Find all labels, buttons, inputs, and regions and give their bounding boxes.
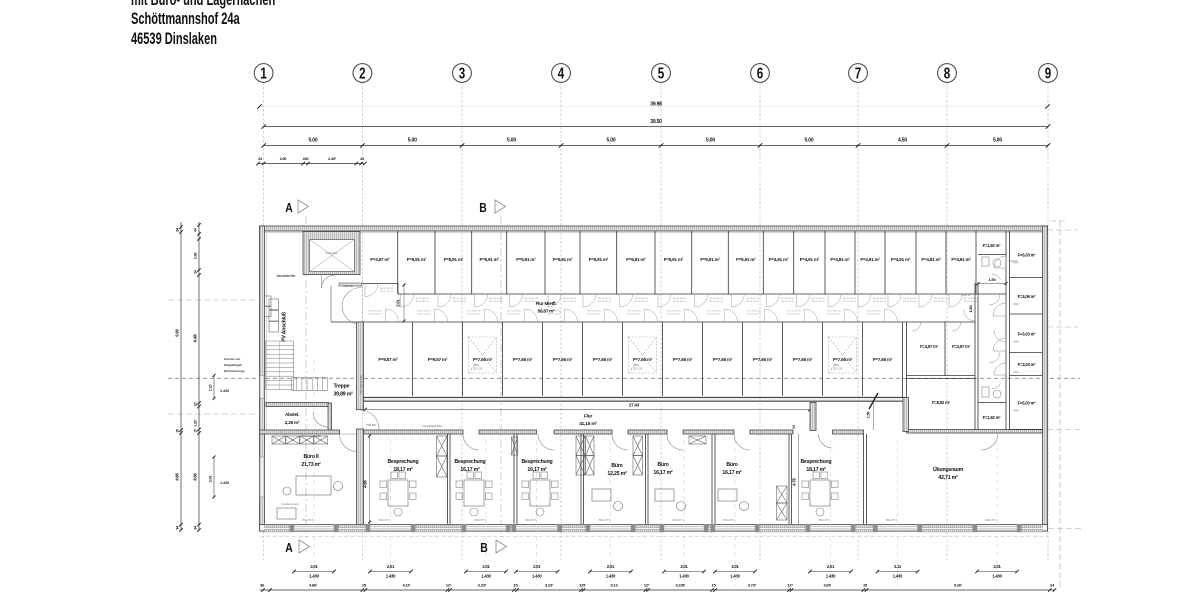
- svg-text:A: A: [285, 541, 293, 555]
- svg-text:BS 03: BS 03: [418, 314, 425, 316]
- svg-text:5.00: 5.00: [993, 138, 1002, 144]
- svg-text:RD 30: RD 30: [416, 298, 423, 300]
- svg-text:2.01: 2.01: [993, 564, 1001, 569]
- svg-text:RD 30: RD 30: [387, 288, 394, 290]
- svg-text:B: B: [480, 541, 488, 555]
- svg-text:BWA: BWA: [634, 363, 640, 367]
- svg-text:1.430: 1.430: [992, 574, 1002, 579]
- svg-text:F=5,91 m²: F=5,91 m²: [700, 257, 720, 262]
- svg-text:39,89 m²: 39,89 m²: [334, 392, 354, 398]
- svg-text:BS 03: BS 03: [934, 301, 941, 303]
- svg-text:Übungsraum: Übungsraum: [933, 466, 964, 473]
- svg-text:12,25 m²: 12,25 m²: [607, 471, 627, 477]
- svg-text:27.43: 27.43: [629, 403, 640, 408]
- svg-text:F=9,57 m²: F=9,57 m²: [378, 357, 398, 362]
- svg-text:5.00: 5.00: [607, 138, 616, 144]
- svg-text:Treppe: Treppe: [334, 384, 350, 390]
- svg-text:RD 30: RD 30: [834, 311, 841, 313]
- svg-text:RD 30: RD 30: [417, 311, 424, 313]
- svg-text:1.430: 1.430: [220, 481, 229, 485]
- svg-text:2.01: 2.01: [209, 476, 213, 483]
- svg-text:BWA: BWA: [474, 363, 480, 367]
- svg-text:RD 30: RD 30: [867, 311, 874, 313]
- svg-text:1.15: 1.15: [209, 385, 213, 392]
- svg-text:BS 03: BS 03: [748, 314, 755, 316]
- svg-text:24: 24: [194, 270, 198, 274]
- svg-text:BRH 87,5: BRH 87,5: [379, 518, 391, 522]
- svg-text:12⁵: 12⁵: [194, 401, 198, 406]
- svg-text:BS 03: BS 03: [595, 314, 602, 316]
- svg-text:RD 30: RD 30: [525, 298, 532, 300]
- svg-text:2.11: 2.11: [894, 564, 902, 569]
- svg-text:1.20*1.00: 1.20*1.00: [631, 367, 643, 371]
- svg-text:2.01: 2.01: [607, 564, 615, 569]
- svg-text:1.50: 1.50: [989, 277, 997, 282]
- svg-text:Verteilerschrank: Verteilerschrank: [281, 503, 299, 506]
- svg-text:3.65: 3.65: [824, 583, 832, 588]
- svg-text:RD 30: RD 30: [423, 298, 430, 300]
- svg-text:42,71 m²: 42,71 m²: [938, 475, 958, 481]
- svg-text:Trennwand F30: Trennwand F30: [301, 434, 321, 438]
- svg-text:3.73⁵: 3.73⁵: [748, 583, 757, 588]
- svg-text:F=9,92 m²: F=9,92 m²: [932, 400, 950, 405]
- svg-text:RWA: RWA: [1013, 340, 1019, 343]
- svg-text:F=1,92 m²: F=1,92 m²: [983, 243, 1001, 248]
- svg-text:3.23⁵: 3.23⁵: [478, 583, 487, 588]
- svg-text:PV Anschluß: PV Anschluß: [282, 311, 288, 342]
- svg-text:Besprechung: Besprechung: [455, 459, 486, 465]
- svg-text:BS 03: BS 03: [508, 314, 515, 316]
- svg-text:(Entrauchung): (Entrauchung): [224, 369, 245, 373]
- svg-text:F=5,91 m²: F=5,91 m²: [480, 257, 500, 262]
- svg-text:BS 03: BS 03: [788, 314, 795, 316]
- svg-text:2.01: 2.01: [680, 564, 688, 569]
- svg-text:RD 30: RD 30: [934, 298, 941, 300]
- svg-text:BS 03: BS 03: [868, 314, 875, 316]
- svg-text:Trennwand F30: Trennwand F30: [359, 375, 363, 395]
- svg-text:6: 6: [757, 65, 764, 82]
- svg-text:F=4,91 m²: F=4,91 m²: [891, 257, 911, 262]
- svg-text:Vorratskeller: Vorratskeller: [276, 274, 296, 278]
- svg-text:21,73 m²: 21,73 m²: [301, 462, 321, 468]
- svg-text:Büro: Büro: [611, 463, 622, 469]
- svg-text:BS 03: BS 03: [570, 301, 577, 303]
- svg-text:Abstel.: Abstel.: [285, 412, 299, 417]
- svg-text:3.13: 3.13: [611, 583, 619, 588]
- svg-text:RD 30: RD 30: [563, 298, 570, 300]
- svg-text:BS 03: BS 03: [416, 301, 423, 303]
- svg-text:A: A: [285, 201, 293, 215]
- svg-text:1.430: 1.430: [481, 574, 491, 579]
- svg-text:RD 30: RD 30: [514, 311, 521, 313]
- svg-text:BS 03: BS 03: [635, 301, 642, 303]
- svg-text:BS 03: BS 03: [781, 301, 788, 303]
- svg-text:RD 30: RD 30: [554, 311, 561, 313]
- svg-text:BS 03: BS 03: [588, 314, 595, 316]
- svg-text:1.430: 1.430: [386, 574, 396, 579]
- svg-text:41,15 m²: 41,15 m²: [579, 421, 597, 427]
- svg-text:BS 03: BS 03: [971, 301, 978, 303]
- svg-text:F=4,91 m²: F=4,91 m²: [800, 257, 820, 262]
- svg-text:RD 30: RD 30: [964, 298, 971, 300]
- svg-text:RWA 30: RWA 30: [962, 294, 971, 297]
- svg-text:F=5,91 m²: F=5,91 m²: [736, 257, 756, 262]
- svg-text:2: 2: [359, 65, 366, 82]
- svg-text:F=5,91 m²: F=5,91 m²: [516, 257, 536, 262]
- svg-text:3: 3: [459, 65, 466, 82]
- svg-text:2.01: 2.01: [533, 564, 541, 569]
- svg-text:RD 30: RD 30: [850, 298, 857, 300]
- svg-text:BS 03: BS 03: [753, 301, 760, 303]
- svg-text:Fenster mit: Fenster mit: [224, 357, 240, 361]
- svg-text:4.66: 4.66: [175, 472, 180, 480]
- svg-text:1.50: 1.50: [867, 412, 871, 419]
- svg-text:BRH 87,5: BRH 87,5: [985, 518, 997, 522]
- svg-text:RD 30: RD 30: [903, 298, 910, 300]
- svg-text:4.50: 4.50: [898, 138, 907, 144]
- svg-text:RD 30: RD 30: [710, 298, 717, 300]
- svg-text:BS 03: BS 03: [453, 301, 460, 303]
- svg-text:12⁵: 12⁵: [446, 583, 452, 588]
- svg-text:BS 03: BS 03: [532, 301, 539, 303]
- svg-text:BS 03: BS 03: [828, 314, 835, 316]
- svg-text:1.430: 1.430: [826, 574, 836, 579]
- svg-text:Büro: Büro: [657, 462, 668, 468]
- svg-text:Trennwand F30: Trennwand F30: [422, 424, 442, 428]
- svg-text:RD 30: RD 30: [910, 298, 917, 300]
- svg-text:15: 15: [176, 429, 180, 433]
- svg-text:BS 03: BS 03: [668, 314, 675, 316]
- svg-text:RD 30: RD 30: [460, 298, 467, 300]
- svg-text:1.430: 1.430: [532, 574, 542, 579]
- svg-text:F=7,65 m²: F=7,65 m²: [873, 357, 893, 362]
- svg-text:BS 03: BS 03: [708, 314, 715, 316]
- svg-text:RWA: RWA: [1013, 303, 1019, 306]
- svg-text:RD 30: RD 30: [880, 298, 887, 300]
- svg-text:4.66: 4.66: [193, 472, 198, 480]
- svg-text:RD 30: RD 30: [634, 311, 641, 313]
- svg-text:2.43¹: 2.43¹: [328, 157, 337, 161]
- svg-text:RD 30: RD 30: [971, 298, 978, 300]
- svg-text:RWA: RWA: [1013, 410, 1019, 413]
- svg-text:Fahrstuhl: Fahrstuhl: [326, 251, 338, 255]
- svg-text:RD 30: RD 30: [587, 311, 594, 313]
- svg-text:RD 30: RD 30: [368, 311, 375, 313]
- svg-text:4.66¹: 4.66¹: [309, 583, 318, 588]
- svg-text:RD 30: RD 30: [598, 298, 605, 300]
- svg-text:F=5,91 m²: F=5,91 m²: [664, 257, 684, 262]
- svg-text:5.00: 5.00: [408, 138, 417, 144]
- svg-text:5: 5: [658, 65, 665, 82]
- svg-text:RD 30: RD 30: [667, 311, 674, 313]
- svg-text:4.76: 4.76: [792, 477, 797, 485]
- svg-text:RD 30: RD 30: [673, 298, 680, 300]
- svg-text:BS 03: BS 03: [563, 301, 570, 303]
- svg-text:3.23¹: 3.23¹: [545, 583, 554, 588]
- svg-text:F=5,03 m²: F=5,03 m²: [1018, 252, 1036, 257]
- svg-text:BS 03: BS 03: [843, 301, 850, 303]
- svg-text:5.00: 5.00: [805, 138, 814, 144]
- svg-text:BRH 87,5: BRH 87,5: [525, 518, 537, 522]
- svg-text:2.01: 2.01: [482, 564, 490, 569]
- svg-text:F=7,65 m²: F=7,65 m²: [593, 357, 613, 362]
- svg-text:RD 30: RD 30: [642, 298, 649, 300]
- svg-text:T30 RS: T30 RS: [366, 423, 376, 427]
- svg-text:2.01: 2.01: [827, 564, 835, 569]
- svg-text:BS 03: BS 03: [941, 301, 948, 303]
- svg-text:BS 03: BS 03: [819, 301, 826, 303]
- svg-text:BS 03: BS 03: [548, 314, 555, 316]
- svg-text:RD 30: RD 30: [474, 311, 481, 313]
- svg-text:BRH 87,5: BRH 87,5: [302, 518, 314, 522]
- svg-text:RD 30: RD 30: [605, 298, 612, 300]
- svg-text:mit Büro- und Lagerflächen: mit Büro- und Lagerflächen: [131, 0, 275, 9]
- svg-text:RD 30: RD 30: [827, 311, 834, 313]
- svg-text:BS 03: BS 03: [875, 314, 882, 316]
- svg-text:RD 30: RD 30: [819, 298, 826, 300]
- svg-text:BS 03: BS 03: [380, 291, 387, 293]
- svg-text:RD 30: RD 30: [788, 298, 795, 300]
- svg-text:1.50: 1.50: [968, 305, 973, 313]
- svg-text:RD 30: RD 30: [794, 311, 801, 313]
- svg-text:BS 03: BS 03: [910, 301, 917, 303]
- svg-text:F=3,97 m²: F=3,97 m²: [952, 344, 970, 349]
- svg-text:RWA: RWA: [1013, 371, 1019, 374]
- svg-text:BS 03: BS 03: [642, 301, 649, 303]
- svg-text:RD 30: RD 30: [754, 311, 761, 313]
- svg-text:RD 30: RD 30: [787, 311, 794, 313]
- svg-text:RD 30: RD 30: [680, 298, 687, 300]
- svg-text:125: 125: [579, 583, 586, 588]
- svg-text:RD 30: RD 30: [674, 311, 681, 313]
- svg-text:1.430: 1.430: [679, 574, 689, 579]
- svg-text:F=7,65 m²: F=7,65 m²: [833, 357, 853, 362]
- svg-text:RD 30: RD 30: [594, 311, 601, 313]
- svg-text:3.235: 3.235: [675, 583, 685, 588]
- svg-text:RD 30: RD 30: [707, 311, 714, 313]
- svg-text:RD 30: RD 30: [714, 311, 721, 313]
- svg-text:BRH 87,5: BRH 87,5: [672, 518, 684, 522]
- svg-text:F=5,91 m²: F=5,91 m²: [444, 257, 464, 262]
- svg-text:5.00: 5.00: [507, 138, 516, 144]
- svg-text:8: 8: [944, 65, 951, 82]
- svg-text:1.430: 1.430: [730, 574, 740, 579]
- svg-text:Besprechung: Besprechung: [522, 459, 553, 465]
- svg-text:16,17 m²: 16,17 m²: [653, 470, 673, 476]
- svg-text:F=4,97 m²: F=4,97 m²: [370, 257, 390, 262]
- svg-text:BS 03: BS 03: [746, 301, 753, 303]
- svg-text:F=5,91 m²: F=5,91 m²: [553, 257, 573, 262]
- svg-text:1.430: 1.430: [309, 574, 319, 579]
- svg-text:Klappflügeln: Klappflügeln: [224, 363, 242, 367]
- svg-text:5.00: 5.00: [309, 138, 318, 144]
- svg-text:5.00: 5.00: [706, 138, 715, 144]
- svg-text:RD 30: RD 30: [781, 298, 788, 300]
- svg-text:BRH 87,5: BRH 87,5: [474, 518, 486, 522]
- svg-text:Besprechung: Besprechung: [388, 459, 419, 465]
- svg-text:RD 30: RD 30: [547, 311, 554, 313]
- svg-text:RD 30: RD 30: [490, 298, 497, 300]
- svg-text:Flur Mietfl.: Flur Mietfl.: [536, 301, 557, 306]
- svg-text:BS 03: BS 03: [710, 301, 717, 303]
- svg-text:Flur: Flur: [584, 414, 593, 420]
- svg-text:F=7,65 m²: F=7,65 m²: [633, 357, 653, 362]
- svg-text:4.15: 4.15: [403, 583, 411, 588]
- svg-text:BS 03: BS 03: [964, 301, 971, 303]
- svg-text:RD 30: RD 30: [375, 311, 382, 313]
- svg-text:BS 03: BS 03: [425, 314, 432, 316]
- svg-text:BS 03: BS 03: [460, 301, 467, 303]
- svg-text:F=4,91 m²: F=4,91 m²: [951, 257, 971, 262]
- svg-text:39.50: 39.50: [650, 119, 662, 125]
- svg-text:RD 30: RD 30: [424, 311, 431, 313]
- svg-text:B: B: [479, 201, 487, 215]
- svg-text:1.20*1.00: 1.20*1.00: [831, 367, 843, 371]
- svg-text:12⁵: 12⁵: [644, 583, 650, 588]
- svg-text:BS 03: BS 03: [873, 301, 880, 303]
- svg-text:2.00: 2.00: [280, 157, 287, 161]
- svg-text:BS 03: BS 03: [490, 301, 497, 303]
- svg-text:RD 30: RD 30: [635, 298, 642, 300]
- svg-text:BS 03: BS 03: [835, 314, 842, 316]
- svg-text:F=5,91 m²: F=5,91 m²: [626, 257, 646, 262]
- svg-text:RD 30: RD 30: [380, 288, 387, 290]
- svg-text:BS 03: BS 03: [850, 301, 857, 303]
- svg-text:F=7,65 m²: F=7,65 m²: [473, 357, 493, 362]
- svg-text:RD 30: RD 30: [746, 298, 753, 300]
- svg-text:RD 30: RD 30: [532, 298, 539, 300]
- svg-text:9: 9: [1045, 65, 1052, 82]
- svg-text:RD 30: RD 30: [941, 298, 948, 300]
- svg-text:T30 RS: T30 RS: [343, 284, 353, 288]
- svg-text:RD 30: RD 30: [717, 298, 724, 300]
- svg-text:F=9,57 m²: F=9,57 m²: [428, 357, 448, 362]
- svg-text:BS 03: BS 03: [788, 301, 795, 303]
- svg-text:BS 03: BS 03: [715, 314, 722, 316]
- svg-text:F=5,91 m²: F=5,91 m²: [407, 257, 427, 262]
- svg-text:1.430: 1.430: [220, 389, 229, 393]
- svg-text:RD 30: RD 30: [747, 311, 754, 313]
- svg-text:F=7,65 m²: F=7,65 m²: [673, 357, 693, 362]
- svg-text:F=4,91 m²: F=4,91 m²: [921, 257, 941, 262]
- svg-text:F=7,65 m²: F=7,65 m²: [753, 357, 773, 362]
- svg-text:F=3,03 m²: F=3,03 m²: [1018, 331, 1036, 336]
- svg-text:2.01: 2.01: [396, 298, 401, 306]
- svg-text:2.01: 2.01: [731, 564, 739, 569]
- svg-text:F=4,06 m²: F=4,06 m²: [1018, 294, 1036, 299]
- svg-text:F=4,91 m²: F=4,91 m²: [860, 257, 880, 262]
- svg-text:BS 03: BS 03: [680, 301, 687, 303]
- svg-text:2.01: 2.01: [387, 564, 395, 569]
- svg-text:240: 240: [303, 157, 309, 161]
- svg-text:F=7,65 m²: F=7,65 m²: [553, 357, 573, 362]
- svg-text:BS 03: BS 03: [628, 314, 635, 316]
- svg-text:Büro II: Büro II: [303, 454, 319, 460]
- svg-text:BS 03: BS 03: [475, 314, 482, 316]
- svg-text:RD 30: RD 30: [874, 311, 881, 313]
- svg-text:BRH 87,5: BRH 87,5: [886, 518, 898, 522]
- svg-text:4.66: 4.66: [363, 479, 368, 487]
- svg-text:BRH 87,5: BRH 87,5: [723, 518, 735, 522]
- svg-text:RD 30: RD 30: [873, 298, 880, 300]
- svg-text:RWA: RWA: [1013, 261, 1019, 264]
- svg-text:F=7,65 m²: F=7,65 m²: [513, 357, 533, 362]
- svg-text:BS 03: BS 03: [795, 314, 802, 316]
- svg-text:9.99: 9.99: [175, 328, 180, 336]
- svg-text:1.20*1.00: 1.20*1.00: [471, 367, 483, 371]
- svg-text:F=7,65 m²: F=7,65 m²: [713, 357, 733, 362]
- svg-text:3.5: 3.5: [792, 425, 796, 429]
- svg-text:BS 03: BS 03: [555, 314, 562, 316]
- svg-text:BS 03: BS 03: [525, 301, 532, 303]
- svg-text:RD 30: RD 30: [753, 298, 760, 300]
- svg-text:RD 30: RD 30: [843, 298, 850, 300]
- svg-text:BS 03: BS 03: [497, 301, 504, 303]
- svg-text:BS 03: BS 03: [468, 314, 475, 316]
- svg-text:2,26 m²: 2,26 m²: [285, 420, 300, 425]
- svg-text:RD 30: RD 30: [507, 311, 514, 313]
- svg-text:2.01: 2.01: [310, 564, 318, 569]
- svg-text:BS 03: BS 03: [635, 314, 642, 316]
- svg-text:BS 03: BS 03: [880, 301, 887, 303]
- svg-text:F=3,03 m²: F=3,03 m²: [1018, 362, 1036, 367]
- svg-text:9.26¹: 9.26¹: [954, 583, 963, 588]
- svg-text:BS 03: BS 03: [376, 314, 383, 316]
- svg-text:RD 30: RD 30: [627, 311, 634, 313]
- svg-text:RD 30: RD 30: [812, 298, 819, 300]
- svg-text:F=5,03 m²: F=5,03 m²: [1018, 401, 1036, 406]
- svg-text:BRH 87,5: BRH 87,5: [599, 518, 611, 522]
- svg-text:1.60: 1.60: [194, 253, 198, 260]
- svg-text:44: 44: [194, 228, 198, 232]
- svg-text:F=4,91 m²: F=4,91 m²: [830, 257, 850, 262]
- svg-text:F=7,65 m²: F=7,65 m²: [793, 357, 813, 362]
- svg-text:RD 30: RD 30: [497, 298, 504, 300]
- svg-text:RD 30: RD 30: [467, 311, 474, 313]
- svg-text:BS 03: BS 03: [755, 314, 762, 316]
- svg-text:16,17 m²: 16,17 m²: [722, 470, 742, 476]
- svg-text:BS 03: BS 03: [515, 314, 522, 316]
- svg-text:BS 03: BS 03: [812, 301, 819, 303]
- svg-text:BS 03: BS 03: [598, 301, 605, 303]
- svg-text:Besprechung: Besprechung: [801, 459, 832, 465]
- svg-text:BS 03: BS 03: [423, 301, 430, 303]
- svg-text:BS 03: BS 03: [717, 301, 724, 303]
- svg-text:BWA: BWA: [834, 363, 840, 367]
- svg-text:F=4,91 m²: F=4,91 m²: [769, 257, 789, 262]
- svg-text:F=5,91 m²: F=5,91 m²: [589, 257, 609, 262]
- svg-text:BS 03: BS 03: [675, 314, 682, 316]
- svg-text:F=1,92 m²: F=1,92 m²: [983, 415, 1001, 420]
- svg-text:7: 7: [855, 65, 862, 82]
- svg-text:1.430: 1.430: [893, 574, 903, 579]
- svg-text:BS 03: BS 03: [369, 314, 376, 316]
- svg-text:BS 03: BS 03: [387, 291, 394, 293]
- svg-text:BS 03: BS 03: [673, 301, 680, 303]
- svg-text:15: 15: [194, 429, 198, 433]
- svg-text:12⁵: 12⁵: [787, 583, 793, 588]
- svg-text:F=4,97 m²: F=4,97 m²: [920, 344, 938, 349]
- svg-text:BS 03: BS 03: [605, 301, 612, 303]
- svg-text:4: 4: [558, 65, 565, 82]
- svg-text:RD 30: RD 30: [453, 298, 460, 300]
- svg-text:1.430: 1.430: [606, 574, 616, 579]
- svg-text:Büro: Büro: [726, 462, 737, 468]
- svg-text:1.22⁵: 1.22⁵: [194, 419, 198, 427]
- svg-text:RD 30: RD 30: [570, 298, 577, 300]
- svg-text:BS 03: BS 03: [903, 301, 910, 303]
- svg-text:46539 Dinslaken: 46539 Dinslaken: [131, 29, 217, 48]
